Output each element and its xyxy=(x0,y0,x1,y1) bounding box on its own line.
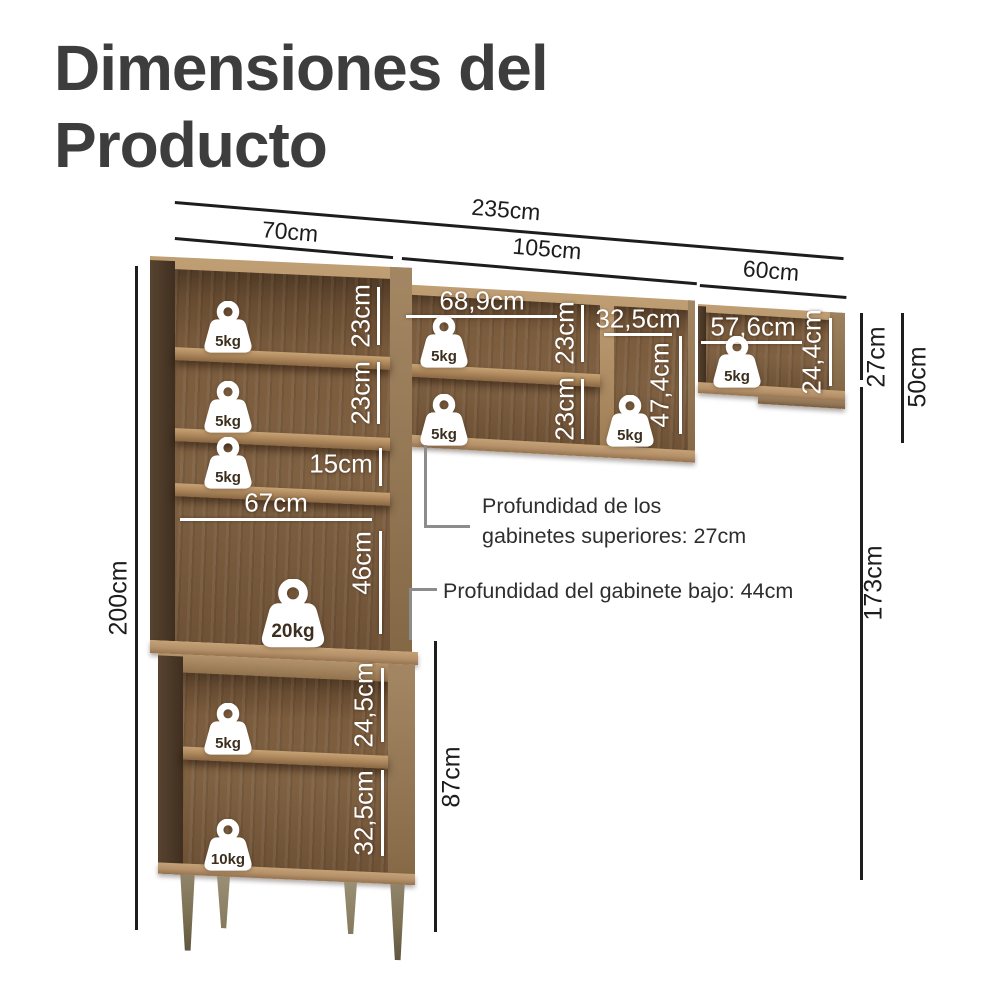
inner-line-left-open xyxy=(379,531,382,634)
weight-capacity-label: 20kg xyxy=(260,621,326,643)
cabinet-leg-back-left xyxy=(215,876,232,929)
weight-capacity-label: 5kg xyxy=(203,735,253,752)
middle-cabinet-right-edge xyxy=(688,300,695,460)
left-hutch-side-panel xyxy=(150,260,175,641)
cabinet-leg-front-left xyxy=(178,874,197,951)
weight-capacity-label: 5kg xyxy=(419,348,469,365)
dim-text: 173cm xyxy=(860,545,889,620)
dim-text: 87cm xyxy=(438,746,467,807)
dim-text: 23cm xyxy=(346,284,377,348)
weight-capacity-icon: 20kg xyxy=(260,579,326,649)
dim-text: 27cm xyxy=(863,326,892,387)
weight-capacity-label: 10kg xyxy=(203,851,253,868)
dim-text: 15cm xyxy=(309,449,373,480)
weight-capacity-label: 5kg xyxy=(203,333,253,350)
weight-capacity-icon: 10kg xyxy=(203,819,253,872)
inner-line-mid-right-height xyxy=(679,336,682,434)
base-cabinet-side-panel xyxy=(158,655,183,874)
weight-capacity-icon: 5kg xyxy=(203,437,253,490)
upper-depth-note: Profundidad de los gabinetes superiores:… xyxy=(482,492,750,551)
dim-text: 67cm xyxy=(244,488,308,519)
weight-capacity-icon: 5kg xyxy=(203,301,253,354)
weight-capacity-label: 5kg xyxy=(419,426,469,443)
dim-text: 32,5cm xyxy=(349,770,380,855)
product-dimensions-diagram: Dimensiones del Producto xyxy=(0,0,1000,1000)
lower-depth-note: Profundidad del gabinete bajo: 44cm xyxy=(443,577,793,607)
weight-capacity-icon: 5kg xyxy=(203,703,253,756)
cabinet-leg-back-right xyxy=(342,882,359,935)
inner-line-mid-shelf1 xyxy=(581,305,584,362)
cabinet-leg-front-right xyxy=(388,884,407,961)
weight-capacity-icon: 5kg xyxy=(605,395,655,448)
inner-line-mid-shelf2 xyxy=(581,379,584,439)
dim-text: 50cm xyxy=(904,346,933,407)
base-cabinet-right-panel xyxy=(388,664,415,885)
dim-text: 235cm xyxy=(470,194,541,227)
weight-capacity-icon: 5kg xyxy=(203,381,253,434)
upper-depth-leader-line xyxy=(424,525,470,528)
inner-line-left-shelf3 xyxy=(379,448,382,486)
right-cabinet-right-edge xyxy=(830,312,845,401)
weight-capacity-label: 5kg xyxy=(605,427,655,444)
dim-text: 200cm xyxy=(105,560,134,635)
inner-line-right-height xyxy=(829,318,832,386)
dim-line-right-width xyxy=(700,284,847,299)
dim-text: 23cm xyxy=(550,301,581,365)
weight-capacity-icon: 5kg xyxy=(419,394,469,447)
inner-line-left-shelf2 xyxy=(377,362,380,424)
dim-text: 23cm xyxy=(346,361,377,425)
lower-depth-leader-line xyxy=(409,588,412,640)
dim-text: 70cm xyxy=(261,216,319,248)
weight-capacity-label: 5kg xyxy=(203,413,253,430)
upper-depth-leader-line xyxy=(424,445,427,527)
dim-text: 23cm xyxy=(550,377,581,441)
dim-text: 60cm xyxy=(742,255,800,287)
dim-line-below-height xyxy=(860,387,863,880)
right-cabinet-left-edge xyxy=(698,306,706,392)
dim-text: 32,5cm xyxy=(595,304,680,335)
inner-line-base-shelf1 xyxy=(381,668,384,742)
dim-text: 46cm xyxy=(347,531,378,595)
dim-line-total-height xyxy=(135,266,138,930)
weight-capacity-icon: 5kg xyxy=(419,316,469,369)
dim-text: 68,9cm xyxy=(439,286,524,317)
lower-depth-leader-line xyxy=(409,588,437,591)
dim-line-base-height xyxy=(434,641,437,932)
weight-capacity-icon: 5kg xyxy=(712,336,762,389)
dim-text: 24,5cm xyxy=(349,662,380,747)
dim-text: 24,4cm xyxy=(797,309,828,394)
weight-capacity-label: 5kg xyxy=(712,368,762,385)
dim-text: 105cm xyxy=(511,233,582,266)
weight-capacity-label: 5kg xyxy=(203,469,253,486)
page-title: Dimensiones del Producto xyxy=(54,30,614,184)
inner-line-left-shelf1 xyxy=(377,287,380,345)
inner-line-base-shelf2 xyxy=(381,770,384,856)
